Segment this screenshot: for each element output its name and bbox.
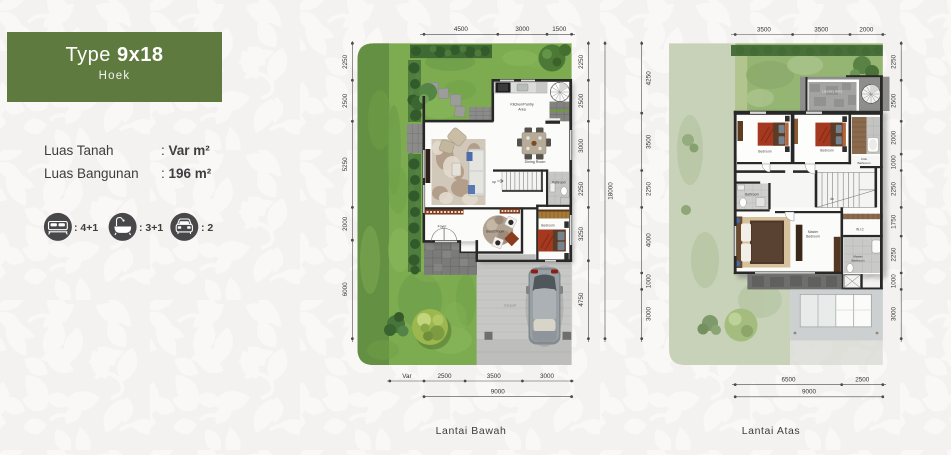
svg-text:1500: 1500 — [552, 26, 567, 33]
svg-text:2250: 2250 — [891, 247, 898, 262]
svg-text:1000: 1000 — [891, 155, 898, 170]
svg-text:Guest Room: Guest Room — [486, 229, 505, 233]
svg-text:4750: 4750 — [578, 292, 585, 307]
svg-text:9000: 9000 — [491, 388, 506, 395]
svg-text:6000: 6000 — [342, 282, 349, 297]
svg-text:Master: Master — [808, 230, 819, 234]
svg-text:2000: 2000 — [891, 130, 898, 145]
svg-text:2500: 2500 — [578, 93, 585, 108]
svg-text:Bathroom: Bathroom — [857, 161, 871, 165]
svg-text:: 4+1: : 4+1 — [74, 222, 98, 234]
svg-text:1000: 1000 — [646, 274, 653, 289]
svg-text:3500: 3500 — [487, 373, 502, 380]
svg-text:Foyer: Foyer — [438, 225, 448, 229]
svg-text:: 3+1: : 3+1 — [139, 222, 163, 234]
svg-text:18000: 18000 — [608, 182, 615, 200]
svg-text:2250: 2250 — [342, 54, 349, 69]
svg-text:W.I.C: W.I.C — [856, 228, 864, 232]
svg-text:2500: 2500 — [855, 376, 870, 383]
svg-text:4250: 4250 — [646, 71, 653, 86]
svg-text:3500: 3500 — [757, 26, 772, 33]
svg-text:5250: 5250 — [342, 157, 349, 172]
svg-text:Bathroom: Bathroom — [851, 259, 865, 263]
svg-text:Bedroom: Bedroom — [541, 224, 555, 228]
svg-text:2250: 2250 — [891, 182, 898, 197]
svg-text:3500: 3500 — [814, 26, 829, 33]
svg-text:Var: Var — [402, 373, 411, 380]
svg-text:1000: 1000 — [891, 274, 898, 289]
svg-text:Bedroom: Bedroom — [820, 149, 834, 153]
svg-text:3000: 3000 — [578, 138, 585, 153]
svg-text:2250: 2250 — [646, 182, 653, 197]
svg-text:9000: 9000 — [802, 389, 817, 396]
svg-text:up: up — [492, 180, 496, 184]
svg-text:3500: 3500 — [646, 134, 653, 149]
svg-text:3000: 3000 — [515, 26, 530, 33]
svg-text:2000: 2000 — [342, 216, 349, 231]
svg-text:Bathroom: Bathroom — [745, 192, 759, 196]
svg-text:3000: 3000 — [646, 307, 653, 322]
svg-text:2500: 2500 — [342, 93, 349, 108]
svg-text:Dining Room: Dining Room — [525, 160, 546, 164]
svg-text:2000: 2000 — [859, 26, 874, 33]
svg-text:2250: 2250 — [578, 54, 585, 69]
svg-text:4500: 4500 — [454, 26, 469, 33]
svg-text:2250: 2250 — [891, 54, 898, 69]
svg-text:Laundry Area: Laundry Area — [822, 90, 842, 94]
svg-text:3250: 3250 — [578, 227, 585, 242]
svg-text:dn: dn — [830, 197, 834, 201]
svg-text:2250: 2250 — [578, 181, 585, 196]
svg-text:Carport: Carport — [504, 304, 518, 308]
svg-text:Kitchen/Pantry: Kitchen/Pantry — [510, 103, 534, 107]
svg-text:Area: Area — [518, 108, 526, 112]
svg-text:2500: 2500 — [437, 373, 452, 380]
svg-text:Bedroom: Bedroom — [806, 235, 820, 239]
svg-text:2500: 2500 — [891, 93, 898, 108]
svg-text:4000: 4000 — [646, 233, 653, 248]
svg-text:6500: 6500 — [781, 376, 796, 383]
svg-text:3000: 3000 — [891, 307, 898, 322]
svg-text:Bedroom: Bedroom — [758, 150, 772, 154]
svg-text:3000: 3000 — [540, 373, 555, 380]
svg-text:: 2: : 2 — [201, 222, 213, 234]
svg-text:1750: 1750 — [891, 214, 898, 229]
